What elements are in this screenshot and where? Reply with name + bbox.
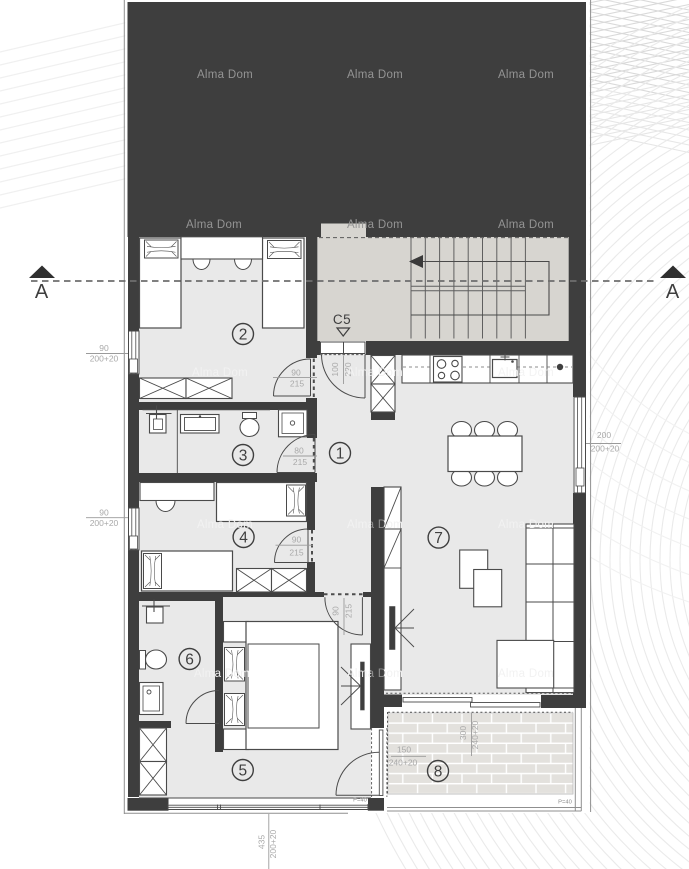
svg-text:200+20: 200+20 [591,444,620,454]
svg-text:Alma Dom: Alma Dom [197,69,253,81]
svg-text:5: 5 [238,763,247,780]
svg-text:100: 100 [330,362,340,376]
svg-text:Alma Dom: Alma Dom [197,519,253,531]
svg-text:90: 90 [99,508,109,518]
svg-text:4: 4 [239,530,248,547]
svg-text:A: A [35,281,49,303]
svg-text:2: 2 [239,327,248,344]
svg-text:90: 90 [331,606,341,616]
svg-text:8: 8 [434,764,443,781]
svg-text:240+20: 240+20 [389,758,418,768]
svg-text:C5: C5 [333,312,351,327]
svg-text:90: 90 [292,535,302,545]
svg-text:215: 215 [290,379,304,389]
svg-text:7: 7 [434,530,443,547]
svg-text:Alma Dom: Alma Dom [347,219,403,231]
svg-text:80: 80 [294,446,304,456]
svg-text:Alma Dom: Alma Dom [498,69,554,81]
svg-text:150: 150 [397,745,411,755]
svg-text:Alma Dom: Alma Dom [192,367,248,379]
svg-text:Alma Dom: Alma Dom [498,219,554,231]
svg-text:P=40: P=40 [353,798,367,804]
svg-text:Alma Dom: Alma Dom [186,219,242,231]
svg-text:200+20: 200+20 [90,518,119,528]
svg-text:6: 6 [185,652,194,669]
svg-text:Alma Dom: Alma Dom [347,69,403,81]
svg-text:Alma Dom: Alma Dom [194,668,250,680]
svg-text:Alma Dom: Alma Dom [498,668,554,680]
svg-text:215: 215 [344,604,354,618]
svg-text:90: 90 [291,368,301,378]
svg-text:3: 3 [239,448,248,465]
svg-text:200: 200 [597,430,611,440]
svg-text:435: 435 [257,835,267,849]
svg-text:Alma Dom: Alma Dom [498,519,554,531]
svg-text:215: 215 [289,548,303,558]
svg-text:P=40: P=40 [558,800,572,806]
svg-text:A: A [666,281,680,303]
svg-text:300: 300 [458,726,468,740]
svg-text:Alma Dom: Alma Dom [498,367,554,379]
svg-text:240+20: 240+20 [470,720,480,749]
svg-text:90: 90 [99,343,109,353]
svg-text:215: 215 [293,457,307,467]
svg-text:200+20: 200+20 [90,354,119,364]
svg-text:1: 1 [336,446,345,463]
svg-text:Alma Dom: Alma Dom [347,367,403,379]
svg-text:200+20: 200+20 [268,829,278,858]
